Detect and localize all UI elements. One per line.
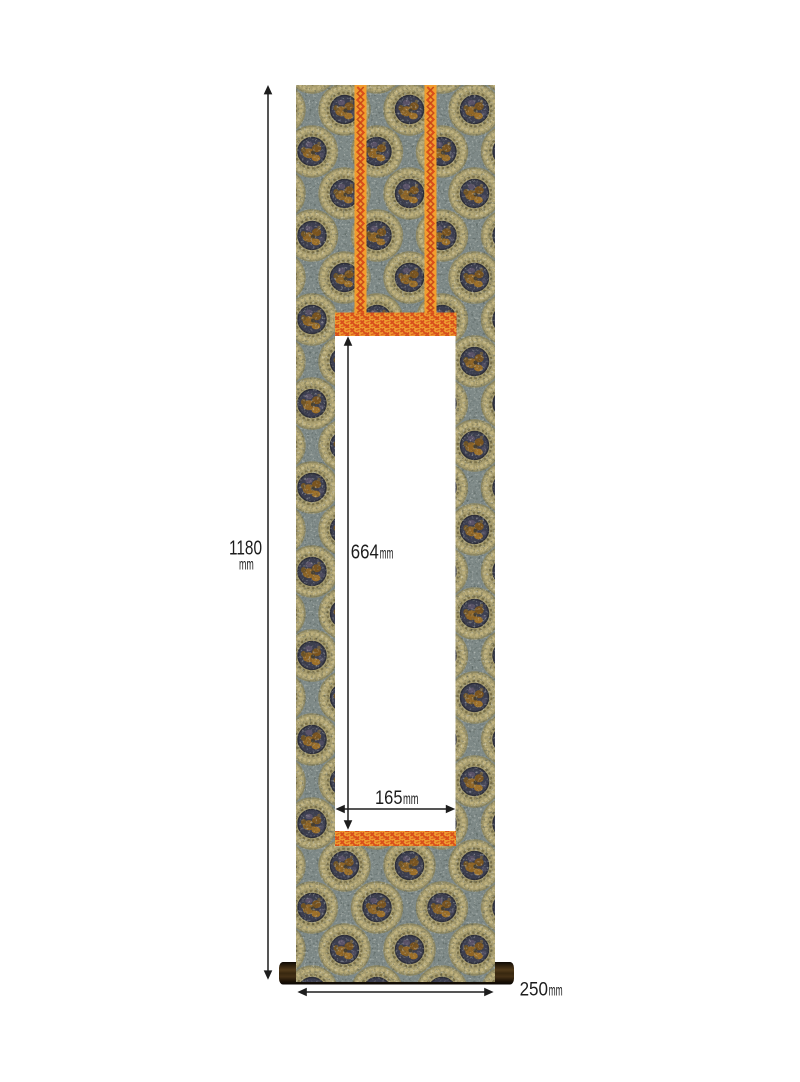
svg-text:mm: mm [549, 983, 563, 1000]
svg-text:664: 664 [351, 542, 379, 564]
svg-text:250: 250 [520, 979, 549, 1001]
svg-text:mm: mm [239, 557, 254, 574]
svg-text:165: 165 [375, 787, 403, 809]
svg-text:mm: mm [380, 546, 394, 563]
svg-text:mm: mm [403, 791, 419, 808]
